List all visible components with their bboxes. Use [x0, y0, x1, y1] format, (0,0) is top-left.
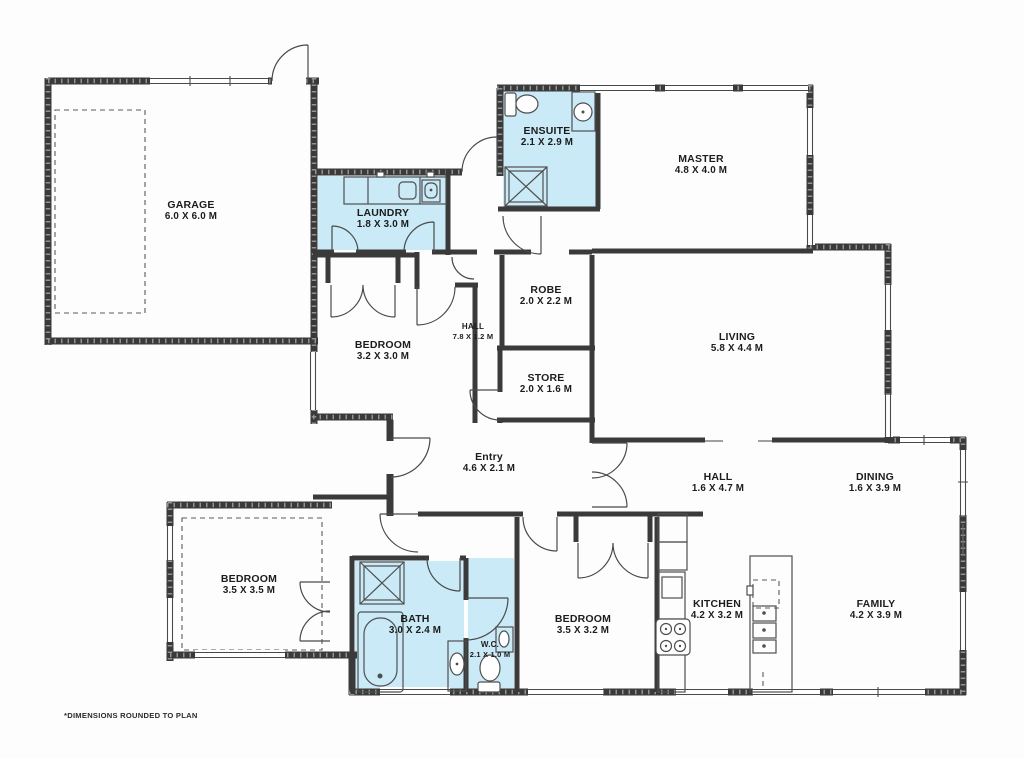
kitchen-counters	[658, 514, 687, 692]
room-dimensions: 6.0 X 6.0 M	[165, 211, 217, 223]
room-label-robe: ROBE 2.0 X 2.2 M	[520, 284, 572, 308]
room-dimensions: 1.6 X 3.9 M	[849, 483, 901, 495]
room-dimensions: 3.0 X 2.4 M	[389, 625, 441, 637]
room-label-hall2: HALL 1.6 X 4.7 M	[692, 471, 744, 495]
room-label-master: MASTER 4.8 X 4.0 M	[675, 153, 727, 177]
dashed-outlines	[55, 110, 322, 650]
room-label-family: FAMILY 4.2 X 3.9 M	[850, 598, 902, 622]
room-label-kitchen: KITCHEN 4.2 X 3.2 M	[691, 598, 743, 622]
room-dimensions: 1.6 X 4.7 M	[692, 483, 744, 495]
room-name: DINING	[849, 471, 901, 483]
room-dimensions: 3.2 X 3.0 M	[355, 351, 411, 363]
room-name: BEDROOM	[555, 613, 611, 625]
room-dimensions: 4.2 X 3.9 M	[850, 610, 902, 622]
front-entry-door-arc	[391, 438, 430, 477]
room-name: GARAGE	[165, 199, 217, 211]
wc-toilet-icon	[478, 655, 500, 692]
bath-lobby-door-arc	[380, 514, 418, 552]
room-dimensions: 7.8 X 1.2 M	[453, 332, 494, 342]
bath-basin-icon	[448, 641, 466, 691]
room-dimensions: 4.6 X 2.1 M	[463, 463, 515, 475]
bedroom3-door-arc-bottom	[300, 611, 330, 641]
room-label-garage: GARAGE 6.0 X 6.0 M	[165, 199, 217, 223]
dimensions-footnote: *DIMENSIONS ROUNDED TO PLAN	[64, 711, 198, 720]
room-dimensions: 2.1 X 2.9 M	[521, 137, 573, 149]
master-door-arc	[503, 216, 541, 254]
room-dimensions: 4.2 X 3.2 M	[691, 610, 743, 622]
room-dimensions: 1.8 X 3.0 M	[357, 219, 409, 231]
room-name: FAMILY	[850, 598, 902, 610]
room-label-laundry: LAUNDRY 1.8 X 3.0 M	[357, 207, 409, 231]
room-label-store: STORE 2.0 X 1.6 M	[520, 372, 572, 396]
floor-plan-drawing	[0, 0, 1024, 758]
room-label-entry: Entry 4.6 X 2.1 M	[463, 451, 515, 475]
room-name: HALL	[692, 471, 744, 483]
garage-parking-space-dashed	[55, 110, 145, 313]
room-dimensions: 4.8 X 4.0 M	[675, 165, 727, 177]
island-sink-icon	[753, 606, 776, 653]
room-label-dining: DINING 1.6 X 3.9 M	[849, 471, 901, 495]
room-name: MASTER	[675, 153, 727, 165]
floor-plan: GARAGE 6.0 X 6.0 M LAUNDRY 1.8 X 3.0 M E…	[0, 0, 1024, 758]
room-label-hall1: HALL 7.8 X 1.2 M	[453, 322, 494, 341]
room-label-bath: BATH 3.0 X 2.4 M	[389, 613, 441, 637]
bedroom2-door-arc	[417, 287, 455, 325]
room-name: W.C.	[470, 640, 511, 650]
ensuite-shower-icon	[505, 167, 547, 206]
garage-exterior-door-arc	[272, 45, 308, 81]
room-name: ENSUITE	[521, 125, 573, 137]
room-name: STORE	[520, 372, 572, 384]
bedroom4-wardrobe-doors-arc	[578, 543, 648, 578]
bedroom2-wardrobe-doors-arc	[331, 285, 395, 317]
room-name: LIVING	[711, 331, 763, 343]
bedroom3-door-arc-top	[300, 582, 330, 612]
room-name: BATH	[389, 613, 441, 625]
bath-shower-icon	[360, 562, 404, 604]
room-name: BEDROOM	[355, 339, 411, 351]
room-label-wc: W.C. 2.1 X 1.0 M	[470, 640, 511, 659]
room-label-bedroom4: BEDROOM 3.5 X 3.2 M	[555, 613, 611, 637]
room-dimensions: 3.5 X 3.5 M	[221, 585, 277, 597]
room-name: Entry	[463, 451, 515, 463]
room-name: BEDROOM	[221, 573, 277, 585]
room-dimensions: 2.1 X 1.0 M	[470, 650, 511, 660]
room-name: LAUNDRY	[357, 207, 409, 219]
room-name: HALL	[453, 322, 494, 332]
room-label-living: LIVING 5.8 X 4.4 M	[711, 331, 763, 355]
room-label-ensuite: ENSUITE 2.1 X 2.9 M	[521, 125, 573, 149]
rear-hall-door-arc	[462, 137, 497, 172]
room-dimensions: 5.8 X 4.4 M	[711, 343, 763, 355]
kitchen-stove-icon	[656, 619, 690, 655]
room-dimensions: 2.0 X 2.2 M	[520, 296, 572, 308]
hall-vestibule-door-arc	[452, 257, 474, 279]
bedroom4-door-arc	[523, 517, 557, 551]
room-dimensions: 2.0 X 1.6 M	[520, 384, 572, 396]
room-name: KITCHEN	[691, 598, 743, 610]
room-name: ROBE	[520, 284, 572, 296]
entry-hall-double-door-arcs	[592, 443, 627, 507]
room-label-bedroom2: BEDROOM 3.2 X 3.0 M	[355, 339, 411, 363]
ensuite-basin-icon	[572, 92, 595, 131]
room-label-bedroom3: BEDROOM 3.5 X 3.5 M	[221, 573, 277, 597]
room-dimensions: 3.5 X 3.2 M	[555, 625, 611, 637]
laundry-bench-icon	[344, 172, 446, 204]
